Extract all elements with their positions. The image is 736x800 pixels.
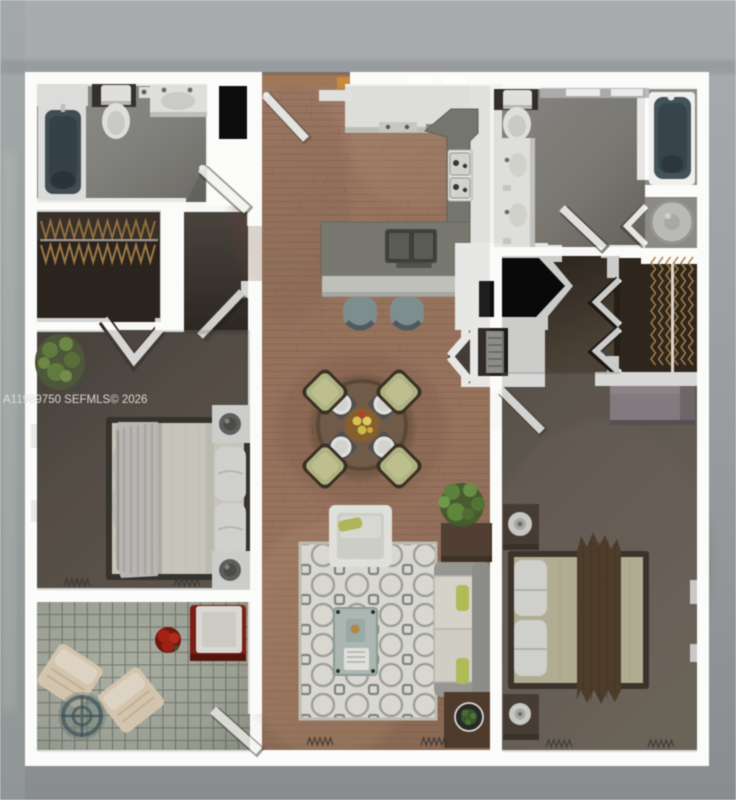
svg-text:A11989750 SEFMLS© 2026: A11989750 SEFMLS© 2026 xyxy=(3,394,147,406)
